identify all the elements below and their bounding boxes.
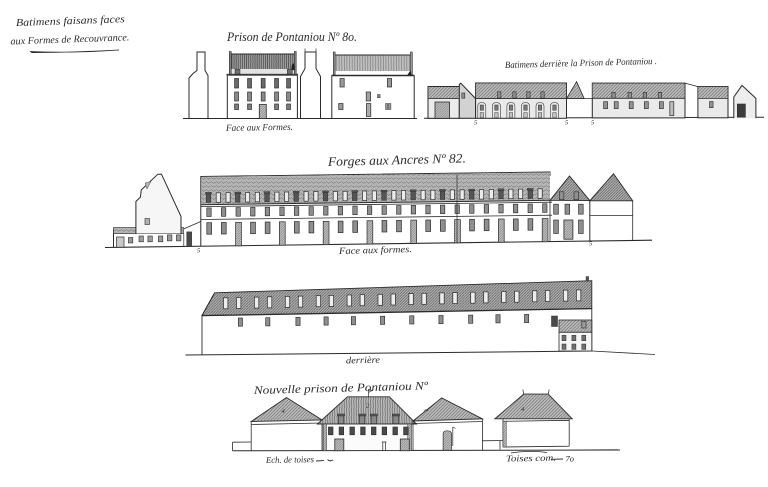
svg-text:Prison de Pontaniou Nº 8o.: Prison de Pontaniou Nº 8o. bbox=[226, 30, 357, 44]
svg-text:2: 2 bbox=[366, 404, 369, 410]
svg-text:Face aux formes.: Face aux formes. bbox=[338, 244, 412, 257]
svg-text:Ech. de toises: Ech. de toises bbox=[265, 454, 315, 465]
svg-text:Toises com.: Toises com. bbox=[506, 453, 556, 464]
svg-text:derrière: derrière bbox=[346, 356, 380, 367]
svg-text:Face aux Formes.: Face aux Formes. bbox=[225, 123, 293, 134]
svg-text:7o: 7o bbox=[566, 454, 575, 464]
svg-text:~: ~ bbox=[424, 406, 429, 415]
